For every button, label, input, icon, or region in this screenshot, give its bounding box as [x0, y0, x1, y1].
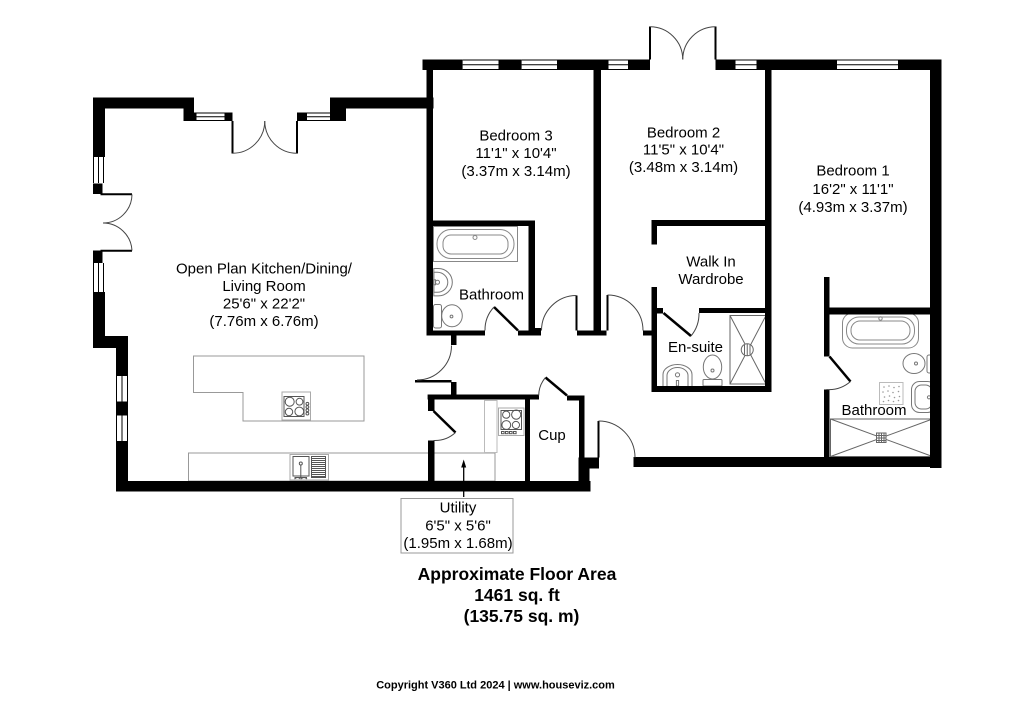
svg-text:(1.95m x 1.68m): (1.95m x 1.68m) [403, 535, 512, 552]
svg-text:Wardrobe: Wardrobe [678, 271, 743, 288]
svg-text:(7.76m x 6.76m): (7.76m x 6.76m) [209, 313, 318, 330]
svg-text:Copyright V360 Ltd 2024 | www.: Copyright V360 Ltd 2024 | www.houseviz.c… [376, 680, 615, 692]
svg-text:(3.48m x 3.14m): (3.48m x 3.14m) [629, 159, 738, 176]
svg-text:Walk In: Walk In [686, 254, 735, 271]
svg-text:Bedroom 1: Bedroom 1 [816, 163, 889, 180]
svg-text:(3.37m x 3.14m): (3.37m x 3.14m) [461, 163, 570, 180]
svg-text:Bathroom: Bathroom [459, 287, 524, 304]
svg-text:En-suite: En-suite [668, 339, 723, 356]
svg-text:Open Plan Kitchen/Dining/: Open Plan Kitchen/Dining/ [176, 261, 353, 278]
svg-text:1461 sq. ft: 1461 sq. ft [474, 585, 560, 605]
svg-text:(4.93m x 3.37m): (4.93m x 3.37m) [798, 199, 907, 216]
svg-text:(135.75 sq. m): (135.75 sq. m) [464, 606, 580, 626]
svg-text:11'1" x 10'4": 11'1" x 10'4" [475, 145, 556, 162]
svg-text:6'5" x 5'6": 6'5" x 5'6" [425, 518, 491, 535]
svg-text:Living Room: Living Room [222, 278, 305, 295]
svg-text:Bathroom: Bathroom [841, 402, 906, 419]
svg-text:Cup: Cup [538, 427, 566, 444]
svg-text:25'6" x 22'2": 25'6" x 22'2" [223, 296, 305, 313]
svg-text:Approximate Floor Area: Approximate Floor Area [418, 564, 617, 584]
svg-text:Bedroom 2: Bedroom 2 [647, 124, 720, 141]
svg-text:11'5" x 10'4": 11'5" x 10'4" [643, 142, 724, 159]
svg-text:16'2" x 11'1": 16'2" x 11'1" [812, 181, 893, 198]
svg-text:Bedroom 3: Bedroom 3 [479, 128, 552, 145]
svg-text:Utility: Utility [440, 500, 477, 517]
